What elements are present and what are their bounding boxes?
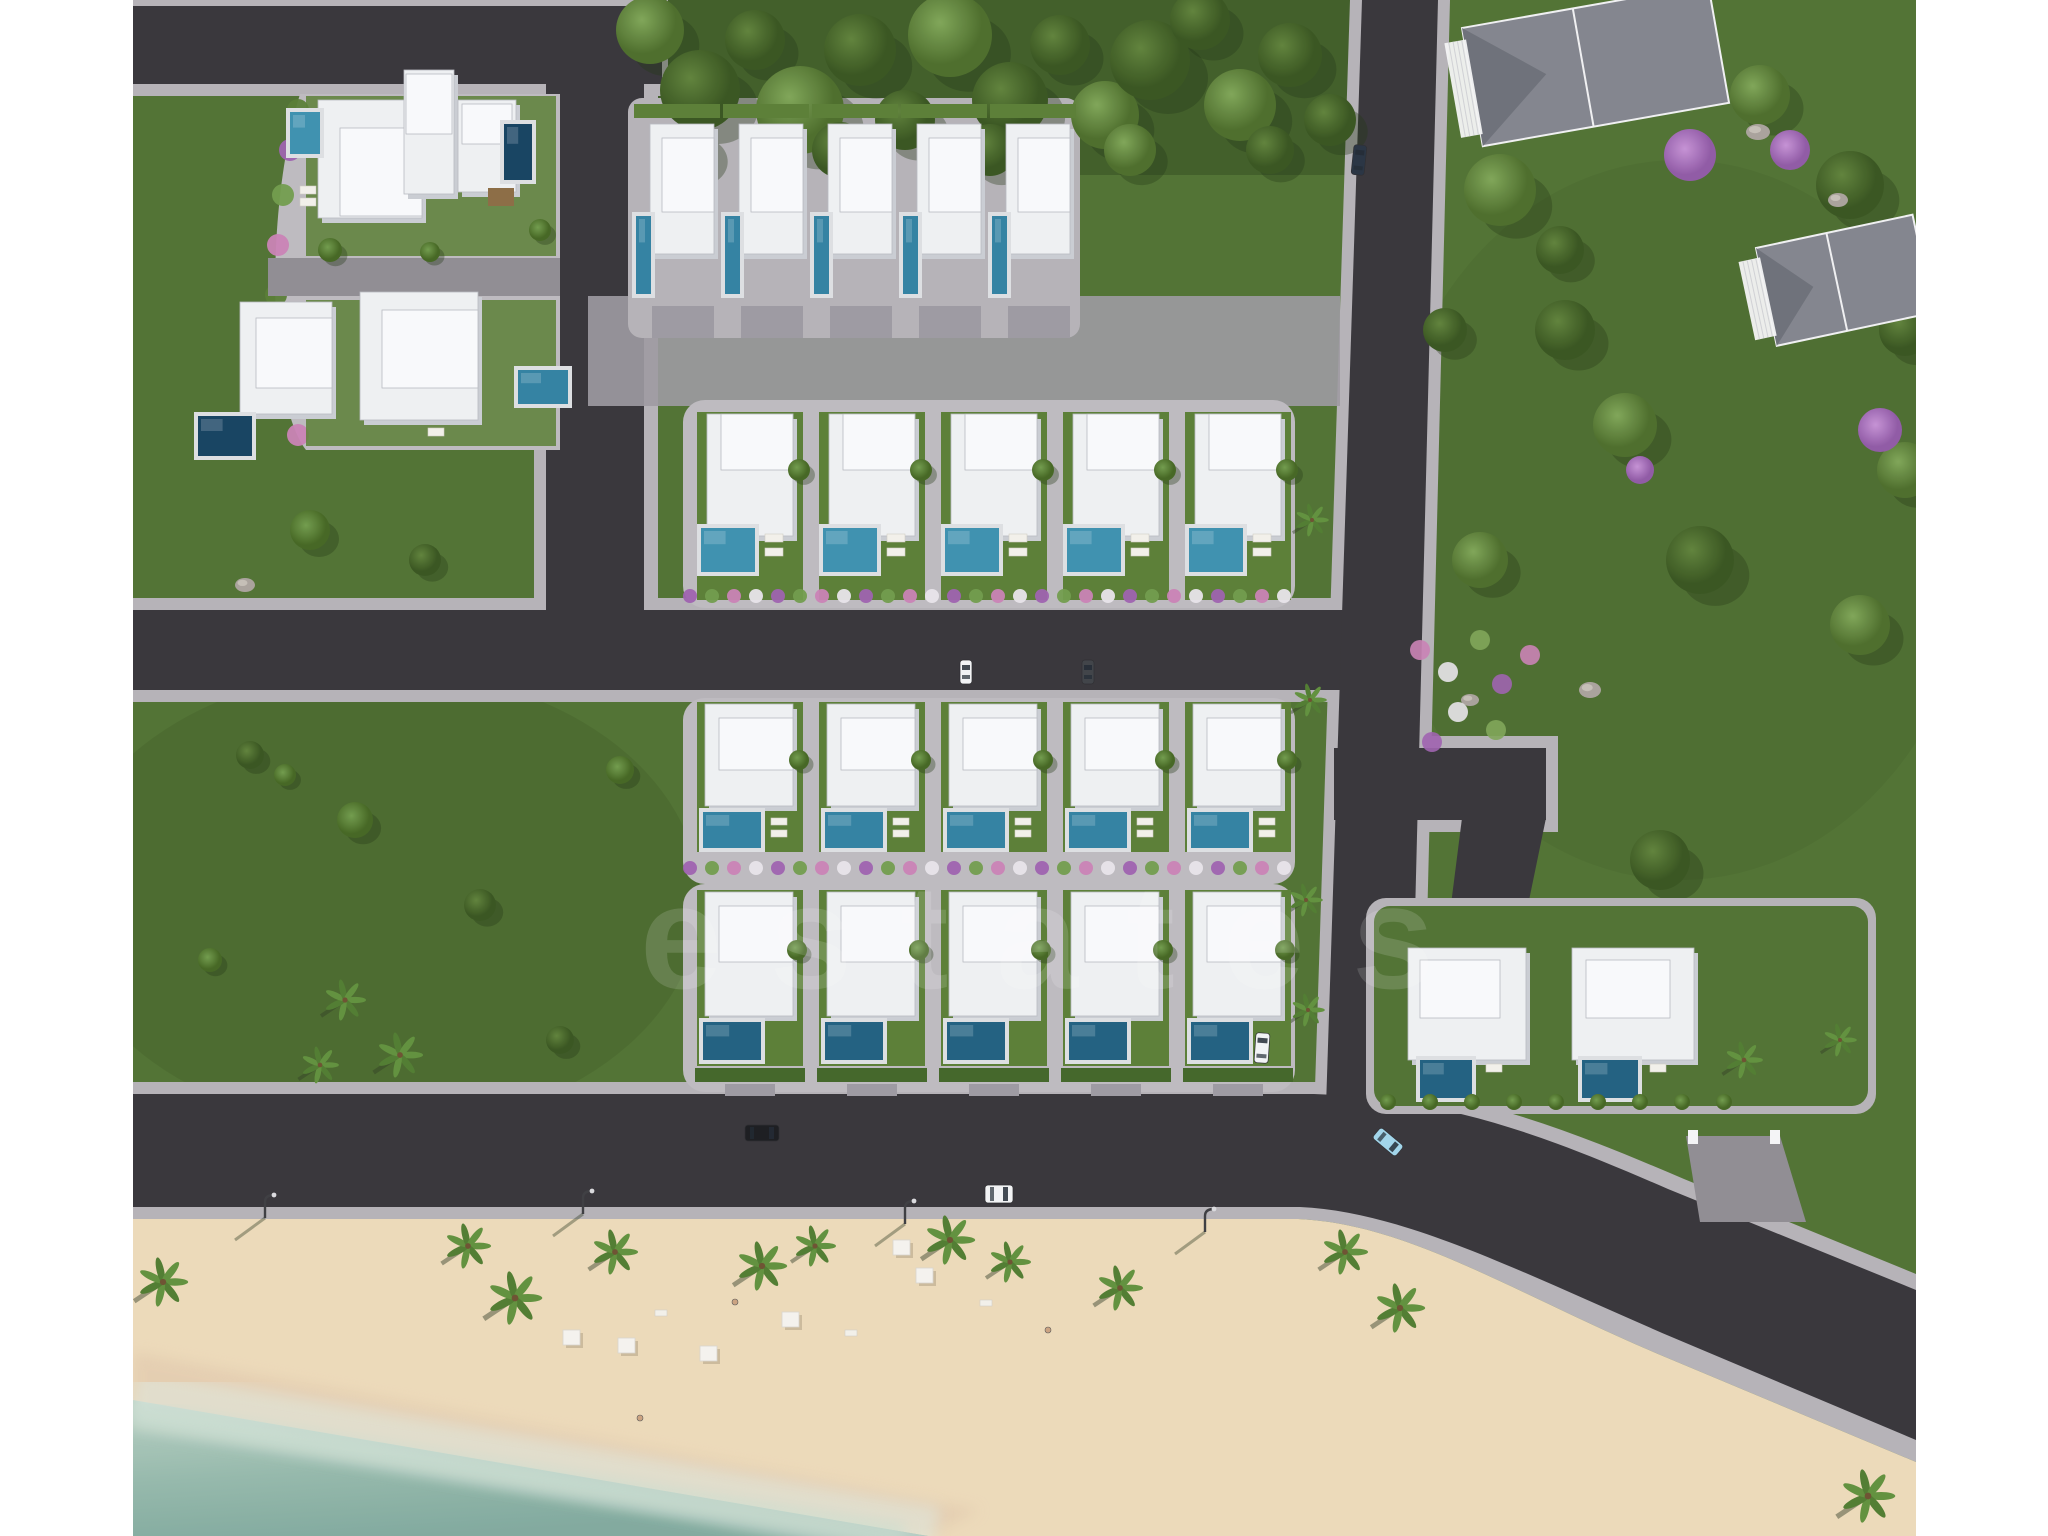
masterplan-aerial-svg	[0, 0, 2048, 1536]
aerial-render-stage: estates	[0, 0, 2048, 1536]
haze-overlay	[133, 0, 1916, 1536]
scene	[60, 0, 1980, 1536]
